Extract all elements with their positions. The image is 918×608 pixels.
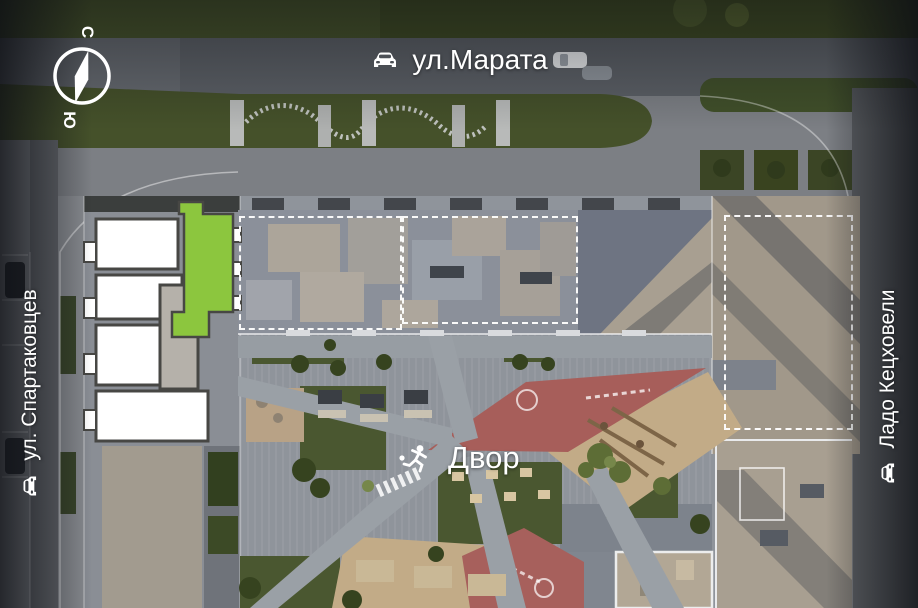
courtyard-label: Двор <box>398 440 520 476</box>
section-floor-plan <box>80 196 245 448</box>
courtyard-name: Двор <box>448 440 520 476</box>
car-icon <box>21 473 39 499</box>
street-label-marata: ул.Марата <box>0 44 918 76</box>
building-section-outline-west[interactable] <box>239 216 402 330</box>
street-label-ketskhoveli: Ладо Кецховели <box>876 218 900 558</box>
right-shade-overlay <box>826 0 918 608</box>
street-name: Ладо Кецховели <box>876 290 900 449</box>
apartment-unit <box>96 391 208 441</box>
compass-south-label: Ю <box>60 111 79 129</box>
street-name: ул. Спартаковцев <box>18 289 42 460</box>
street-label-spartakovtsev: ул. Спартаковцев <box>18 224 42 564</box>
selected-apartment-highlight[interactable] <box>172 202 233 337</box>
car-icon <box>370 50 400 70</box>
apartment-unit <box>96 219 178 269</box>
street-name: ул.Марата <box>412 44 547 76</box>
compass-north-label: С <box>78 26 97 38</box>
car-icon <box>879 461 897 487</box>
pedestrian-icon <box>398 443 436 473</box>
building-section-outline-center[interactable] <box>402 216 578 324</box>
residential-site-plan: С Ю ул.Марата ул. Спартаковцев Ладо Кец <box>0 0 918 608</box>
